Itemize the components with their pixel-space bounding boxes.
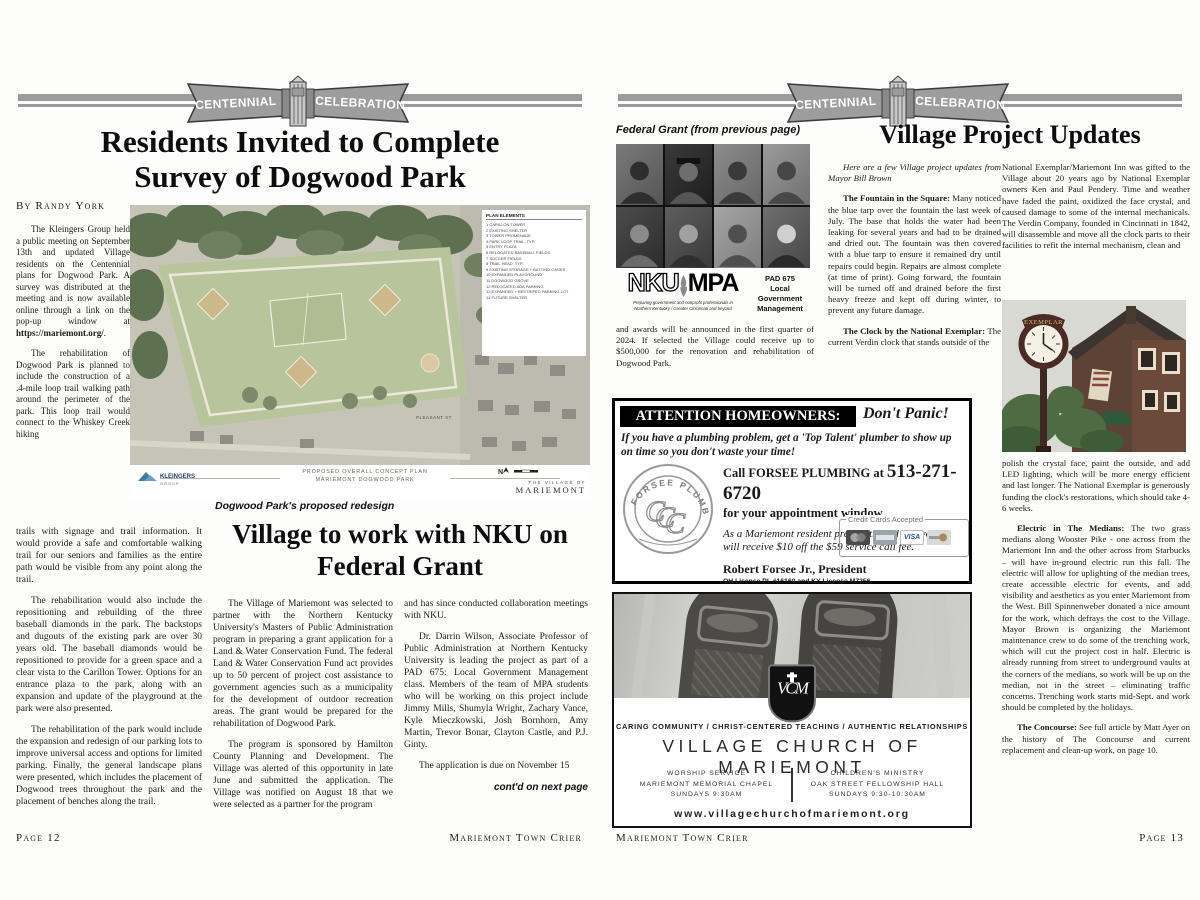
portrait-photo — [714, 144, 761, 205]
license-text: OH License PL #16160 and KY License M725… — [723, 578, 969, 585]
nku-a2: The program is sponsored by Hamilton Cou… — [213, 739, 393, 811]
nku-b1: and has since conducted collaboration me… — [404, 598, 588, 622]
soccer-field-icon — [270, 293, 346, 346]
call-line-pre: Call FORSEE PLUMBING at — [723, 466, 887, 480]
nku-mpa-logo-block: NKU MPA Preparing government and nonprof… — [616, 270, 810, 318]
kleingers-sub: GROUP — [160, 481, 180, 486]
centennial-ribbon-left: CENTENNIAL CELEBRATION — [182, 74, 414, 128]
svg-text:C: C — [665, 507, 686, 540]
right-footer-page-number: Page 13 — [1000, 832, 1184, 844]
article1-p3: The rehabilitation would also include th… — [16, 595, 202, 715]
nku-b3: The application is due on November 15 — [404, 760, 588, 772]
kleingers-logo: KLEINGERS GROUP — [136, 467, 206, 489]
contd-notice: cont'd on next page — [404, 782, 588, 794]
attention-homeowners-bar: ATTENTION HOMEOWNERS: — [620, 406, 856, 427]
nku-logo-letters: NKU — [628, 269, 679, 298]
article1-p1-end: . — [104, 328, 106, 338]
street-label: PLEASANT ST — [416, 415, 452, 420]
worship-line2: MARIEMONT MEMORIAL CHAPEL — [622, 780, 791, 791]
fountain-lead: The Fountain in the Square: — [843, 193, 950, 203]
clock-lead: The Clock by the National Exemplar: — [843, 326, 985, 336]
portrait-photo — [616, 207, 663, 268]
portrait-photo — [714, 207, 761, 268]
church-url: www.villagechurchofmariemont.org — [614, 808, 970, 820]
pad-line4: Management — [750, 304, 810, 314]
electric-lead: Electric in The Medians: — [1017, 523, 1124, 533]
article1-p1: The Kleingers Group held a public meetin… — [16, 224, 130, 326]
dogwood-park-plan-figure: PLEASANT ST PLAN ELEMENTS 1 CARILLON TOW… — [130, 205, 590, 500]
mpa-team-photo-grid — [616, 144, 810, 268]
map-caption: Dogwood Park's proposed redesign — [215, 500, 535, 512]
article1-column-wide: trails with signage and trail informatio… — [16, 526, 202, 830]
plumbing-pitch: If you have a plumbing problem, get a 'T… — [621, 432, 965, 459]
carillon-tower-icon — [290, 76, 306, 126]
right-footer-masthead: Mariemont Town Crier — [616, 832, 749, 844]
village-line2: MARIEMONT — [486, 485, 586, 495]
electric-body: The two grass medians along Wooster Pike… — [1002, 523, 1190, 712]
president-name: Robert Forsee Jr., President — [723, 562, 969, 577]
portrait-photo — [763, 144, 810, 205]
kleingers-wordmark: KLEINGERS — [160, 474, 195, 480]
childrens-line2: OAK STREET FELLOWSHIP HALL — [793, 780, 962, 791]
pad-line2: Local — [750, 284, 810, 294]
village-of-mariemont-wordmark: THE VILLAGE OF MARIEMONT — [486, 480, 586, 495]
plan-title-line1: PROPOSED OVERALL CONCEPT PLAN — [280, 468, 450, 476]
credit-cards-box: Credit Cards Accepted VISA — [839, 519, 969, 557]
vcm-shield-logo: VCM — [768, 664, 816, 722]
credit-cards-label: Credit Cards Accepted — [846, 515, 925, 524]
dont-panic-text: Don't Panic! — [863, 405, 967, 423]
nku-tagline-line2: Northern Kentucky / Greater Cincinnati a… — [616, 306, 750, 312]
left-footer-masthead: Mariemont Town Crier — [360, 832, 582, 844]
continued-slug: Federal Grant (from previous page) — [616, 124, 856, 136]
article1-column-narrow: The Kleingers Group held a public meetin… — [16, 224, 130, 524]
plan-footer-strip: KLEINGERS GROUP PROPOSED OVERALL CONCEPT… — [130, 465, 590, 500]
pad-line3: Government — [750, 294, 810, 304]
childrens-line1: CHILDREN'S MINISTRY — [793, 769, 962, 780]
plan-title-line2: MARIEMONT DOGWOOD PARK — [280, 476, 450, 484]
legend-item: 13 EXPANDED + RESTRIPED PARKING LOT — [486, 289, 582, 295]
plan-title-block: PROPOSED OVERALL CONCEPT PLAN MARIEMONT … — [280, 468, 450, 484]
mpa-logo-letters: MPA — [688, 269, 739, 298]
worship-line1: WORSHIP SERVICE — [622, 769, 791, 780]
childrens-column: CHILDREN'S MINISTRY OAK STREET FELLOWSHI… — [793, 769, 962, 801]
worship-line3: SUNDAYS 9:30AM — [622, 790, 791, 801]
flame-icon — [679, 274, 688, 298]
childrens-line3: SUNDAYS 9:30-10:30AM — [793, 790, 962, 801]
updates-headline: Village Project Updates — [845, 120, 1175, 150]
pad-line1: PAD 675 — [750, 274, 810, 284]
plan-legend: PLAN ELEMENTS 1 CARILLON TOWER 2 EXISTIN… — [482, 210, 586, 356]
byline: By Randy York — [16, 200, 105, 212]
nku-b2: Dr. Darrin Wilson, Associate Professor o… — [404, 631, 588, 751]
clock-body3: polish the crystal face, paint the outsi… — [1002, 458, 1190, 514]
concourse-lead: The Concourse: — [1017, 722, 1077, 732]
portrait-photo — [616, 144, 663, 205]
updates-intro: Here are a few Village project updates f… — [828, 162, 1001, 184]
nku-article-headline: Village to work with NKU on Federal Gran… — [205, 518, 595, 582]
exemplar-clock-photo: EXEMPLAR — [1002, 300, 1186, 452]
worship-column: WORSHIP SERVICE MARIEMONT MEMORIAL CHAPE… — [622, 769, 791, 801]
portrait-photo — [665, 144, 712, 205]
article1-url: https://mariemont.org/ — [16, 328, 104, 338]
church-services-row: WORSHIP SERVICE MARIEMONT MEMORIAL CHAPE… — [622, 768, 962, 802]
pad-675-block: PAD 675 Local Government Management — [750, 270, 810, 318]
discover-icon — [927, 530, 951, 545]
exemplar-sign-text: EXEMPLAR — [1024, 319, 1063, 326]
article1-p2a: The rehabilitation of Dogwood Park is pl… — [16, 348, 130, 440]
forsee-plumbing-seal-icon: FORSEE PLUMBING CCC — [621, 461, 715, 557]
article1-p4: The rehabilitation of the park would inc… — [16, 724, 202, 808]
nku-article-col-a: The Village of Mariemont was selected to… — [213, 598, 393, 831]
left-page-headline: Residents Invited to Complete Survey of … — [60, 124, 540, 194]
updates-col2-top: National Exemplar/Mariemont Inn was gift… — [1002, 162, 1190, 296]
nku-a1: The Village of Mariemont was selected to… — [213, 598, 393, 730]
newsletter-spread: CENTENNIAL CELEBRATION Residents Invited… — [0, 0, 1200, 900]
portrait-photo — [763, 207, 810, 268]
legend-title: PLAN ELEMENTS — [486, 213, 582, 220]
mastercard-icon — [846, 530, 870, 545]
portrait-photo — [665, 207, 712, 268]
forsee-plumbing-ad: ATTENTION HOMEOWNERS: Don't Panic! If yo… — [612, 398, 972, 584]
village-church-ad: VCM CARING COMMUNITY / CHRIST-CENTERED T… — [612, 592, 972, 828]
playground-icon — [421, 354, 439, 372]
nku-tagline-line1: Preparing government and nonprofit profe… — [616, 300, 750, 306]
article1-p2b: trails with signage and trail informatio… — [16, 526, 202, 586]
nku-article-col-b: and has since conducted collaboration me… — [404, 598, 588, 831]
legend-item: 14 FUTURE SHELTER — [486, 295, 582, 301]
north-arrow-and-scale: N — [496, 465, 548, 479]
north-arrow-icon: N — [498, 469, 503, 476]
left-footer-page-number: Page 12 — [16, 832, 61, 844]
continued-paragraph: and awards will be announced in the firs… — [616, 324, 814, 382]
carillon-tower-icon — [890, 76, 906, 126]
clock-body2: National Exemplar/Mariemont Inn was gift… — [1002, 162, 1190, 252]
amex-icon — [873, 530, 897, 545]
church-values-line: CARING COMMUNITY / CHRIST-CENTERED TEACH… — [614, 722, 970, 731]
updates-col2-bottom: polish the crystal face, paint the outsi… — [1002, 458, 1190, 830]
visa-icon: VISA — [900, 530, 924, 545]
fountain-body: Many noticed the blue tarp over the foun… — [828, 193, 1001, 315]
updates-col1: Here are a few Village project updates f… — [828, 162, 1001, 398]
